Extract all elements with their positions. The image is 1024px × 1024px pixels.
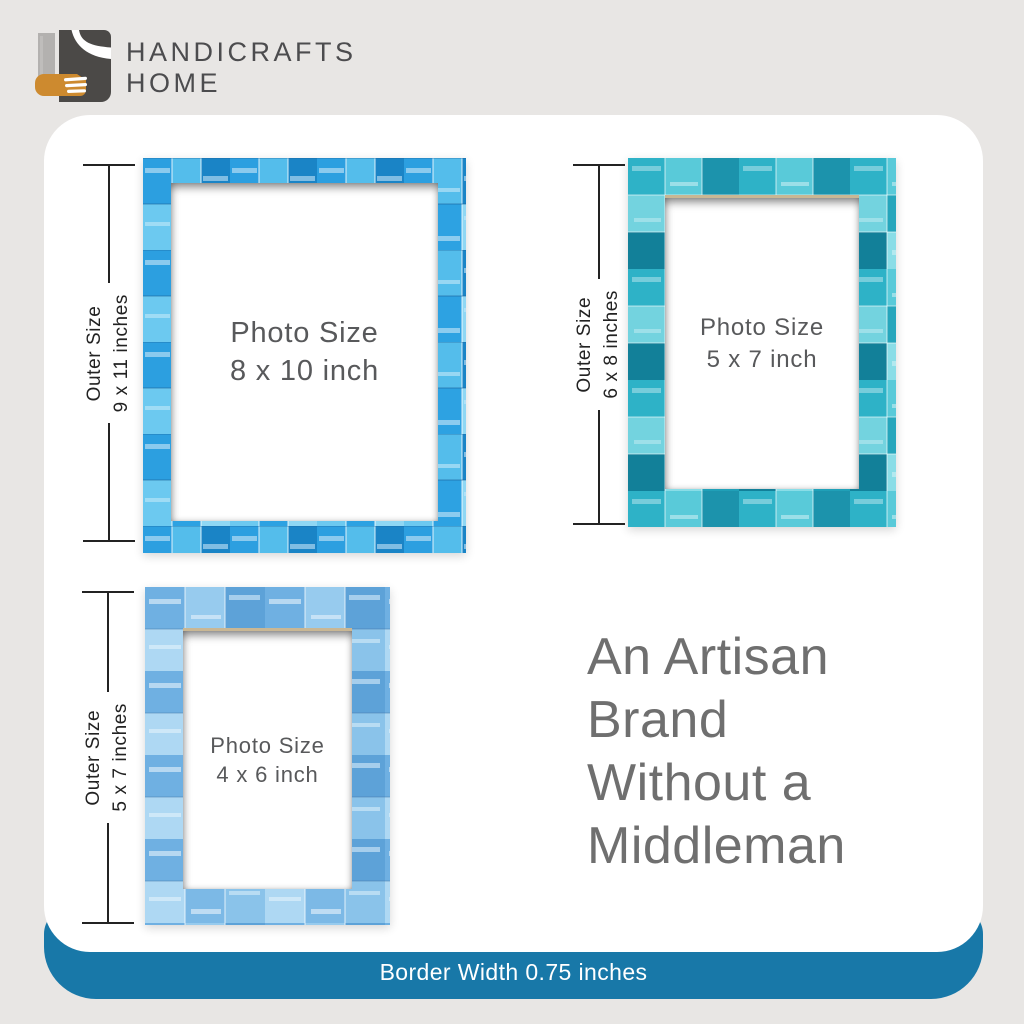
dimension-indicator-8x10: Outer Size 9 x 11 inches bbox=[83, 164, 135, 542]
dimension-cap-bottom bbox=[573, 523, 625, 525]
dimension-indicator-5x7: Outer Size 6 x 8 inches bbox=[573, 164, 625, 525]
brand-logo-text: HANDICRAFTS HOME bbox=[126, 30, 357, 100]
photo-size-label: Photo Size 8 x 10 inch bbox=[230, 314, 379, 391]
dimension-line bbox=[108, 166, 110, 283]
photo-area: Photo Size 8 x 10 inch bbox=[171, 183, 438, 521]
brand-logo: HANDICRAFTS HOME bbox=[34, 30, 357, 103]
dimension-line bbox=[598, 410, 600, 523]
dimension-cap-bottom bbox=[82, 922, 134, 924]
brand-logo-icon bbox=[34, 30, 111, 103]
photo-area: Photo Size 4 x 6 inch bbox=[183, 628, 352, 889]
outer-size-label: Outer Size 5 x 7 inches bbox=[81, 692, 135, 823]
frame-8x10: Photo Size 8 x 10 inch bbox=[143, 158, 466, 553]
border-width-label: Border Width 0.75 inches bbox=[380, 959, 648, 986]
dimension-line bbox=[108, 423, 110, 540]
dimension-indicator-4x6: Outer Size 5 x 7 inches bbox=[82, 591, 134, 924]
dimension-cap-bottom bbox=[83, 540, 135, 542]
photo-size-label: Photo Size 5 x 7 inch bbox=[700, 312, 824, 375]
outer-size-label: Outer Size 6 x 8 inches bbox=[572, 279, 626, 410]
frame-5x7: Photo Size 5 x 7 inch bbox=[628, 158, 896, 527]
dimension-line bbox=[598, 166, 600, 279]
dimension-line bbox=[107, 823, 109, 922]
frame-4x6: Photo Size 4 x 6 inch bbox=[145, 587, 390, 925]
photo-size-label: Photo Size 4 x 6 inch bbox=[210, 731, 324, 789]
infographic-canvas: HANDICRAFTS HOME Border Width 0.75 inche… bbox=[0, 0, 1024, 1024]
dimension-line bbox=[107, 593, 109, 692]
tagline: An Artisan Brand Without a Middleman bbox=[587, 626, 846, 878]
photo-area: Photo Size 5 x 7 inch bbox=[665, 195, 859, 489]
outer-size-label: Outer Size 9 x 11 inches bbox=[82, 283, 136, 423]
